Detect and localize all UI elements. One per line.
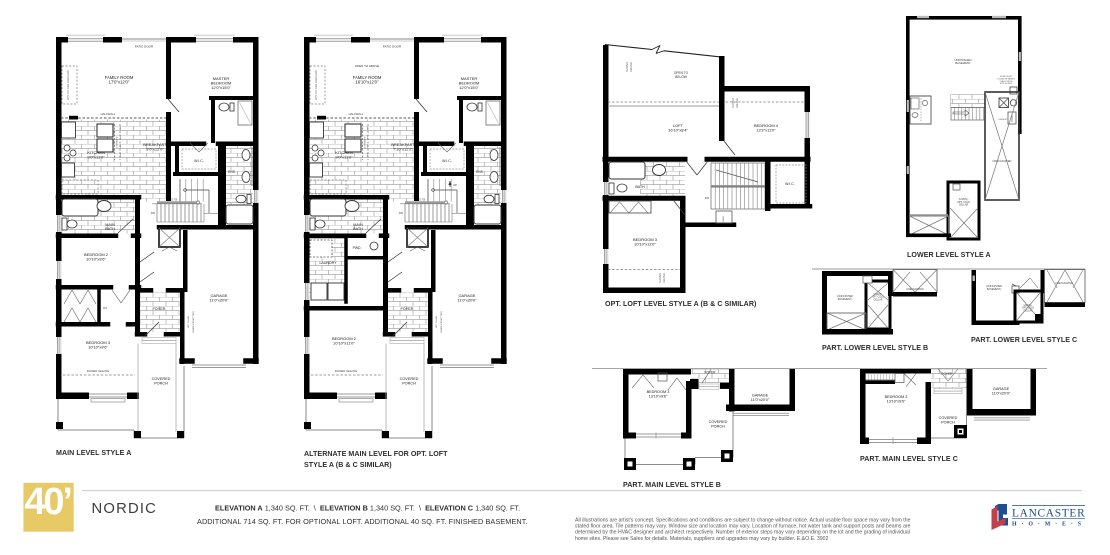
svg-text:RAISED CEILING: RAISED CEILING (87, 369, 109, 373)
svg-text:FAMILY ROOM16'10"x12'0": FAMILY ROOM16'10"x12'0" (353, 75, 382, 85)
svg-text:OPT. LOFT LEVEL STYLE A (B & C: OPT. LOFT LEVEL STYLE A (B & C SIMILAR) (605, 300, 757, 308)
svg-text:UNEXCAVATED: UNEXCAVATED (906, 288, 924, 291)
svg-text:GARAGE11'0"x20'0": GARAGE11'0"x20'0" (751, 394, 770, 402)
svg-text:W.I.C.: W.I.C. (442, 159, 452, 163)
svg-text:GARAGE11'0"x20'0": GARAGE11'0"x20'0" (992, 387, 1011, 395)
svg-text:RAISED CEILING: RAISED CEILING (335, 369, 357, 373)
svg-text:STYLE A (B & C SIMILAR): STYLE A (B & C SIMILAR) (304, 461, 392, 469)
svg-text:GARAGE11'0"x20'0": GARAGE11'0"x20'0" (209, 293, 229, 303)
svg-text:LIN: LIN (103, 306, 107, 310)
svg-text:BREAKFAST8'0"x12'0": BREAKFAST8'0"x12'0" (143, 142, 167, 152)
svg-text:LOWER LEVEL STYLE A: LOWER LEVEL STYLE A (907, 251, 991, 259)
svg-text:OPT. D.V. GAS FIREPLACE: OPT. D.V. GAS FIREPLACE (315, 70, 318, 100)
svg-text:HALFWALL: HALFWALL (349, 112, 364, 116)
svg-text:SLOPED: SLOPED (732, 98, 735, 108)
svg-text:ELEVATION A 1,340 SQ. FT. \: ELEVATION A 1,340 SQ. FT. \ ELEVATION B … (215, 504, 520, 513)
svg-text:SLOPED: SLOPED (626, 62, 629, 72)
svg-text:PART. LOWER LEVEL STYLE C: PART. LOWER LEVEL STYLE C (971, 336, 1077, 344)
svg-text:O.T.B: O.T.B (419, 198, 426, 202)
svg-text:PATIO DOOR: PATIO DOOR (383, 45, 402, 49)
svg-text:OPEN TO ABOVE: OPEN TO ABOVE (355, 64, 379, 68)
svg-text:LAUNDRY: LAUNDRY (319, 261, 337, 265)
svg-text:ALTERNATE MAIN LEVEL FOR OPT.: ALTERNATE MAIN LEVEL FOR OPT. LOFT (304, 450, 448, 458)
svg-text:W.I.C.: W.I.C. (785, 182, 795, 186)
svg-text:OPT. D.V. GAS FIREPLACE: OPT. D.V. GAS FIREPLACE (67, 70, 70, 100)
svg-text:MAINBATH: MAINBATH (353, 223, 363, 231)
svg-text:OPEN TOBELOW: OPEN TOBELOW (674, 71, 689, 79)
svg-text:FOYER: FOYER (152, 307, 165, 311)
svg-text:HALFWALL: HALFWALL (101, 112, 116, 116)
svg-text:MAINBATH: MAINBATH (105, 223, 115, 231)
svg-text:CEILING: CEILING (736, 98, 739, 108)
svg-text:BREAKFAST7'10"x12'2": BREAKFAST7'10"x12'2" (391, 142, 415, 152)
svg-text:PATIO DOOR: PATIO DOOR (135, 45, 154, 49)
svg-text:BATH: BATH (635, 185, 645, 189)
svg-text:GRADE PERMITTING: GRADE PERMITTING (440, 311, 443, 333)
svg-text:COVEREDPORCH: COVEREDPORCH (939, 416, 958, 424)
svg-text:DN: DN (151, 211, 155, 215)
svg-text:40’: 40’ (25, 481, 71, 523)
svg-text:UP: UP (453, 183, 457, 187)
svg-text:MAIN LEVEL STYLE A: MAIN LEVEL STYLE A (56, 449, 131, 457)
svg-text:FOYER: FOYER (705, 371, 717, 375)
svg-text:(UNFINISHEDBASEMENT): (UNFINISHEDBASEMENT) (986, 285, 1002, 291)
svg-text:H · O · M · E · S: H · O · M · E · S (1012, 522, 1082, 528)
svg-text:stated floor area. Tile patter: stated floor area. Tile patterns may var… (575, 524, 911, 530)
svg-text:LINEN: LINEN (723, 215, 725, 221)
svg-text:W.I.C.: W.I.C. (194, 159, 204, 163)
svg-text:MASTERBEDROOM12'0"x15'0": MASTERBEDROOM12'0"x15'0" (211, 76, 232, 90)
svg-text:PART. MAIN LEVEL STYLE C: PART. MAIN LEVEL STYLE C (860, 455, 958, 463)
svg-text:CEILING: CEILING (630, 62, 633, 72)
svg-text:ADDITIONAL 714 SQ. FT. FOR OPT: ADDITIONAL 714 SQ. FT. FOR OPTIONAL LOFT… (197, 517, 528, 526)
svg-text:PWD.: PWD. (353, 246, 362, 250)
svg-text:COVEREDPORCH: COVEREDPORCH (709, 420, 728, 428)
svg-text:O.T.B: O.T.B (171, 198, 178, 202)
svg-text:UNEXCAVATED: UNEXCAVATED (993, 159, 1012, 163)
svg-text:LANCASTER: LANCASTER (1012, 508, 1085, 520)
svg-text:NORDIC: NORDIC (92, 501, 158, 517)
svg-text:BEDROOM 412'2"x11'0": BEDROOM 412'2"x11'0" (754, 123, 779, 133)
svg-text:BEDROOM 313'10"x9'6": BEDROOM 313'10"x9'6" (885, 395, 908, 403)
svg-text:COVEREDPORCH: COVEREDPORCH (400, 377, 419, 385)
svg-text:LAUNDRY: LAUNDRY (998, 118, 1008, 121)
svg-text:home sites. Please see Sales f: home sites. Please see Sales for details… (575, 536, 829, 542)
svg-text:ENS.: ENS. (476, 170, 484, 174)
svg-text:CEILING: CEILING (663, 273, 666, 283)
svg-text:(UNFINISHEDBASEMENT): (UNFINISHEDBASEMENT) (837, 295, 853, 301)
svg-text:UNFINISHEDBASEMENT: UNFINISHEDBASEMENT (954, 58, 971, 65)
svg-text:GARAGE11'0"x20'0": GARAGE11'0"x20'0" (457, 293, 477, 303)
svg-text:DN: DN (705, 196, 709, 200)
svg-text:ENS.: ENS. (228, 170, 236, 174)
svg-text:All illustrations are artist's: All illustrations are artist's concept. … (575, 518, 911, 524)
svg-text:EXTENDED: EXTENDED (117, 136, 119, 147)
svg-text:DN: DN (399, 211, 403, 215)
svg-text:KITCHEN9'0"x11'0": KITCHEN9'0"x11'0" (87, 150, 105, 160)
svg-text:BEDROOM 210'10"x9'6": BEDROOM 210'10"x9'6" (84, 252, 109, 262)
svg-text:OPT. DOOR: OPT. DOOR (436, 316, 438, 328)
svg-text:PART. MAIN LEVEL STYLE B: PART. MAIN LEVEL STYLE B (623, 481, 721, 489)
svg-text:MASTERBEDROOM12'0"x15'0": MASTERBEDROOM12'0"x15'0" (459, 76, 480, 90)
svg-text:PART. LOWER LEVEL STYLE B: PART. LOWER LEVEL STYLE B (822, 344, 928, 352)
svg-text:(UNFIN.)OPT. COLDCELLAR: (UNFIN.)OPT. COLDCELLAR (957, 198, 970, 207)
svg-text:FOYER: FOYER (400, 307, 413, 311)
svg-text:KITCHEN9'0"x11'0": KITCHEN9'0"x11'0" (335, 150, 353, 160)
svg-text:EXTENDED: EXTENDED (365, 136, 367, 147)
svg-text:determined by the HVAC designe: determined by the HVAC designer and arch… (575, 530, 910, 536)
svg-text:BEDROOM 313'10"x9'6": BEDROOM 313'10"x9'6" (647, 390, 670, 398)
svg-text:SLOPED: SLOPED (659, 273, 662, 283)
svg-text:BEDROOM 210'10"x11'0": BEDROOM 210'10"x11'0" (332, 336, 357, 346)
svg-text:BEDROOM 310'10"x9'6": BEDROOM 310'10"x9'6" (86, 340, 111, 350)
svg-text:COVEREDPORCH: COVEREDPORCH (152, 377, 171, 385)
svg-text:UNEXCAVATED: UNEXCAVATED (1055, 282, 1073, 285)
svg-text:GRADE PERMITTING: GRADE PERMITTING (192, 311, 195, 333)
svg-text:OPT. DOOR: OPT. DOOR (188, 316, 190, 328)
svg-text:BEDROOM 310'10"x11'0": BEDROOM 310'10"x11'0" (633, 237, 658, 247)
